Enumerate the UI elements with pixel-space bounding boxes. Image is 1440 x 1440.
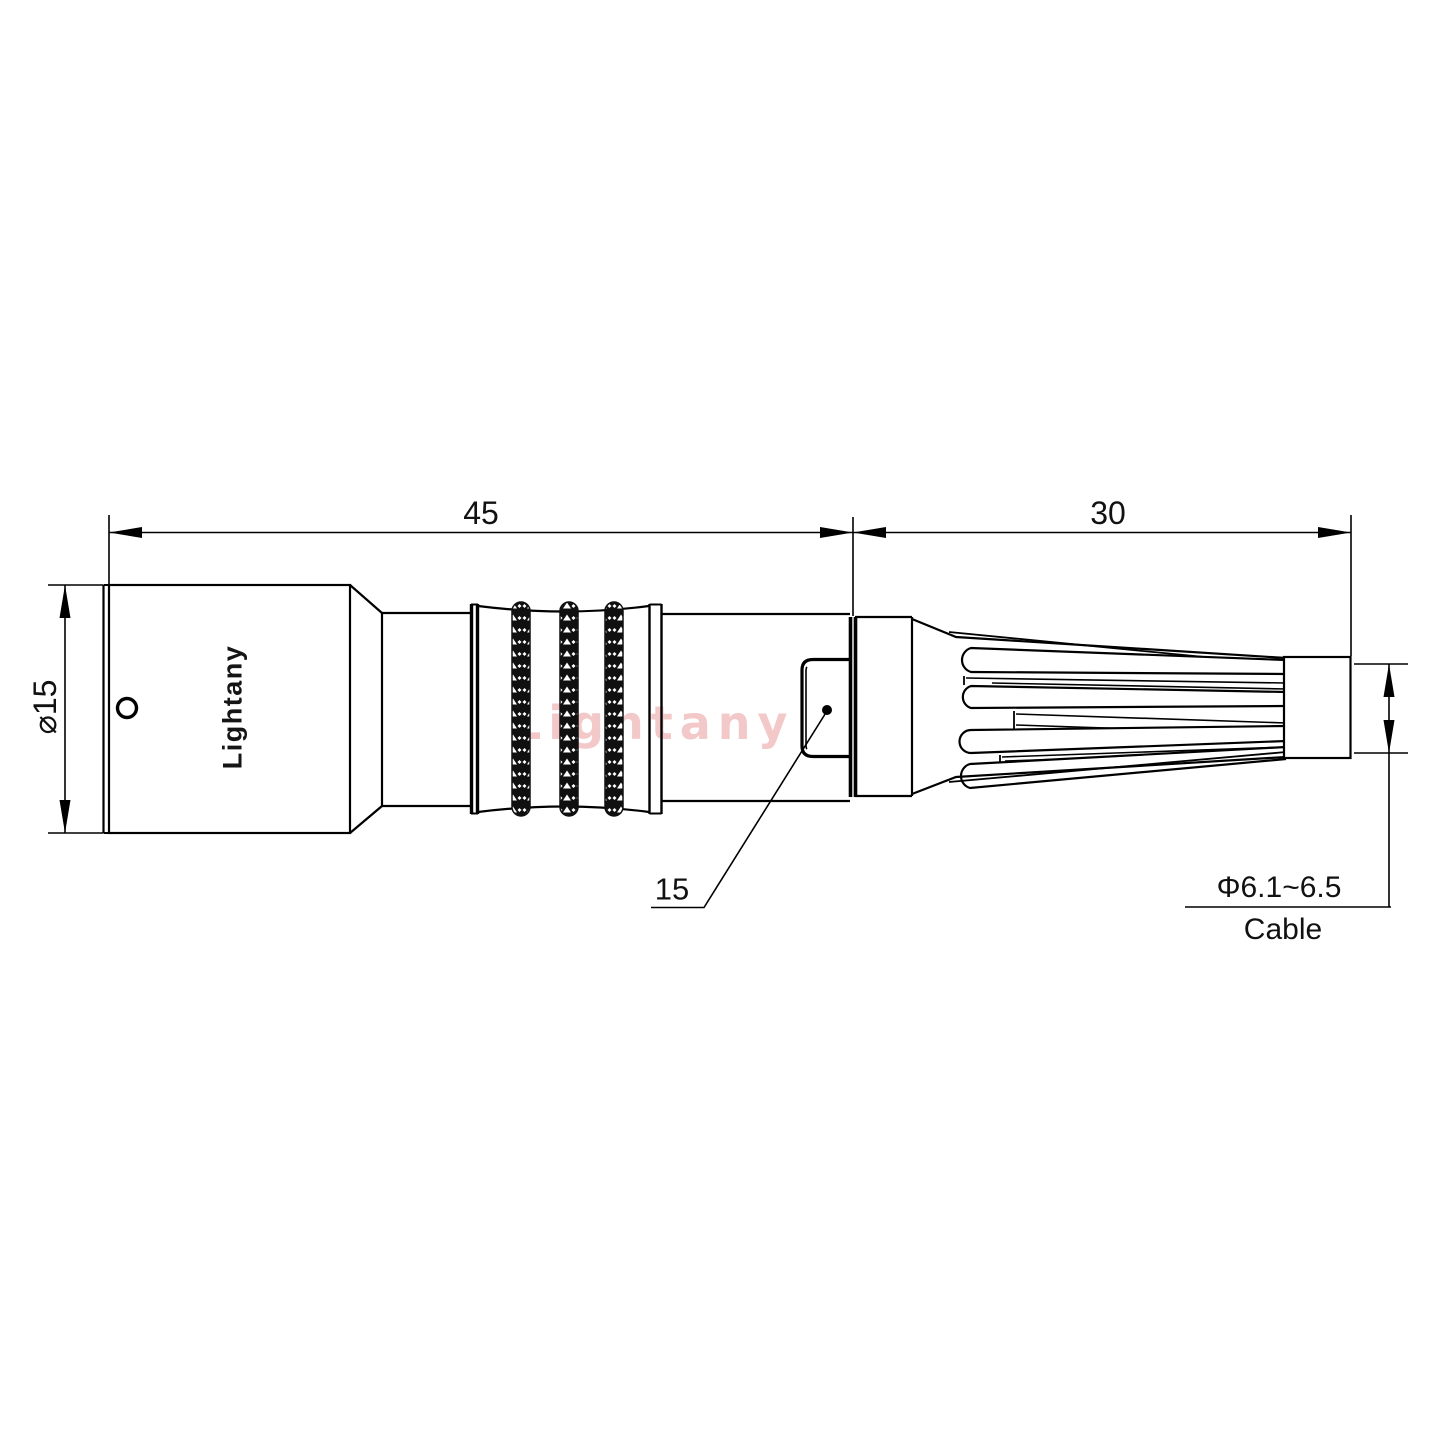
dimension-lines [48,515,1408,908]
polarity-hole [118,699,137,718]
connector-outline [104,585,1351,833]
dimension-label-body-diameter: ⌀15 [29,680,61,735]
front-cylinder [382,613,472,806]
brand-label: Lightany [220,645,247,770]
knurl-bands [512,602,623,816]
drawing-canvas: Lightany [0,0,1440,1440]
dimension-label-latch: 15 [655,874,689,905]
back-shell [855,617,912,796]
technical-drawing [0,0,1440,1440]
cable-ferrule [1284,657,1351,758]
dimension-label-boot-length: 30 [1090,497,1126,529]
rear-cylinder [661,614,850,801]
dimension-arrowheads [60,527,1395,833]
leader-dot [822,705,832,715]
strain-relief-boot [912,619,1286,794]
cable-text-label: Cable [1244,915,1322,945]
dimension-label-cable-diameter: Φ6.1~6.5 [1217,873,1342,903]
latch-detail [802,660,850,757]
dimension-label-front-length: 45 [463,497,499,529]
body-taper [350,585,382,833]
shell-junction [851,617,856,797]
